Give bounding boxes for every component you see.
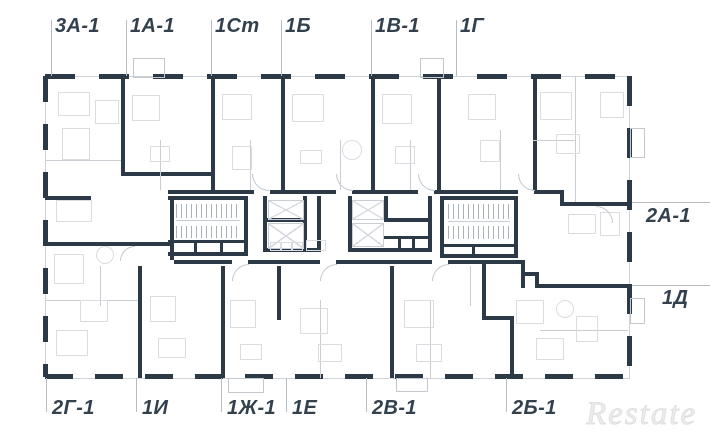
partition-line (470, 266, 471, 306)
wall (560, 202, 628, 206)
leader-line (126, 20, 127, 76)
watermark-restate: Restate (586, 398, 697, 431)
wall (448, 260, 524, 264)
wall (281, 76, 285, 190)
furniture (240, 344, 262, 360)
unit-label-2a-1: 2А-1 (646, 206, 691, 226)
wall (244, 196, 248, 256)
unit-label-1d: 1Д (662, 288, 688, 308)
wall (168, 252, 248, 256)
furniture (540, 92, 572, 120)
window-wall-left (43, 76, 48, 377)
balcony (630, 128, 645, 158)
wall (248, 260, 320, 264)
unit-label-1g: 1Г (460, 16, 484, 36)
unit-label-2b-1: 2Б-1 (512, 398, 557, 418)
leader-line (366, 378, 367, 412)
wall (348, 248, 432, 252)
elevator-shaft (352, 200, 384, 220)
leader-line (136, 378, 137, 412)
wall (384, 218, 432, 222)
furniture (150, 146, 170, 162)
building-outline (45, 76, 630, 379)
leader-line (506, 378, 507, 412)
wall (174, 260, 232, 264)
wall (168, 240, 248, 243)
furniture (292, 242, 303, 251)
wall (533, 76, 537, 190)
furniture (404, 300, 434, 328)
leader-line (456, 20, 457, 76)
wall (440, 244, 518, 247)
wall (168, 190, 254, 194)
wall (138, 266, 142, 378)
staircase-hatch (448, 226, 510, 239)
furniture (62, 128, 90, 160)
wall (428, 196, 432, 252)
balcony (396, 378, 428, 392)
wall (514, 196, 518, 258)
wall (194, 240, 197, 252)
furniture (292, 94, 324, 122)
staircase-hatch (176, 204, 240, 218)
wall (437, 76, 441, 190)
furniture (516, 300, 544, 324)
furniture (468, 94, 496, 120)
wall (352, 190, 418, 194)
unit-label-2v-1: 2В-1 (372, 398, 417, 418)
leader-line (371, 20, 372, 76)
wall (398, 236, 401, 250)
furniture (556, 134, 580, 154)
wall (440, 196, 444, 258)
wall (390, 266, 394, 378)
furniture (480, 140, 500, 162)
wall (121, 76, 125, 174)
wall (534, 190, 562, 194)
floor-plan: 3А-1 1А-1 1Ст 1Б 1В-1 1Г 2А-1 1Д 2Г-1 1И… (0, 0, 725, 444)
furniture (222, 94, 252, 120)
furniture (230, 300, 256, 328)
unit-label-2g-1: 2Г-1 (52, 398, 95, 418)
partition-line (45, 160, 121, 161)
wall (434, 190, 518, 194)
stair-landing-line (176, 220, 240, 221)
elevator-shaft (268, 200, 304, 220)
wall (170, 196, 174, 260)
balcony (133, 58, 165, 78)
furniture (150, 296, 176, 322)
wall (168, 196, 248, 200)
leader-line (221, 378, 222, 412)
balcony (228, 378, 264, 393)
furniture (395, 146, 415, 164)
furniture (158, 338, 186, 358)
window-wall-bottom (45, 374, 628, 379)
furniture (416, 344, 442, 362)
wall (482, 262, 486, 320)
leader-line (286, 378, 287, 412)
furniture (80, 300, 108, 322)
staircase-hatch (176, 226, 240, 238)
unit-label-1zh-1: 1Ж-1 (227, 398, 276, 418)
balcony (630, 298, 645, 324)
furniture (95, 100, 119, 124)
leader-line (46, 378, 47, 412)
furniture (576, 316, 598, 342)
wall (277, 266, 281, 320)
table (556, 300, 574, 318)
leader-line (51, 20, 52, 76)
unit-label-1e: 1Е (292, 398, 317, 418)
wall (45, 242, 173, 246)
wall (510, 316, 514, 378)
unit-label-3a-1: 3А-1 (55, 16, 100, 36)
furniture (568, 214, 596, 234)
window-wall-right (627, 76, 632, 377)
wall (371, 76, 375, 190)
table (96, 246, 114, 264)
unit-label-1i: 1И (142, 398, 168, 418)
stair-landing-line (448, 221, 510, 222)
unit-label-1b: 1Б (285, 16, 311, 36)
leader-line (632, 285, 710, 286)
wall (121, 172, 213, 176)
furniture (318, 344, 342, 362)
furniture (132, 95, 160, 121)
wall (535, 284, 628, 288)
furniture (281, 242, 292, 251)
table (342, 140, 362, 160)
unit-label-1st: 1Ст (215, 16, 260, 36)
wall (440, 254, 518, 258)
furniture (382, 94, 412, 124)
elevator-shaft (352, 223, 384, 247)
leader-line (632, 202, 710, 203)
furniture (232, 146, 252, 170)
leader-line (281, 20, 282, 76)
furniture (300, 308, 328, 334)
partition-line (500, 130, 501, 190)
furniture (536, 338, 564, 360)
wall (384, 236, 432, 239)
furniture (56, 330, 88, 356)
wall (472, 244, 475, 256)
furniture (306, 240, 326, 251)
furniture (270, 242, 281, 251)
wall (440, 196, 518, 200)
leader-line (211, 20, 212, 76)
furniture (56, 200, 92, 222)
wall (221, 266, 225, 378)
wall (220, 240, 223, 252)
wall (263, 196, 267, 252)
unit-label-1v-1: 1В-1 (375, 16, 420, 36)
staircase-hatch (448, 204, 510, 219)
unit-label-1a-1: 1А-1 (130, 16, 175, 36)
furniture (600, 92, 624, 118)
furniture (58, 92, 90, 116)
wall (336, 260, 432, 264)
wall (412, 236, 415, 250)
balcony (420, 58, 444, 78)
furniture (54, 254, 84, 284)
wall (270, 190, 336, 194)
furniture (300, 150, 322, 164)
